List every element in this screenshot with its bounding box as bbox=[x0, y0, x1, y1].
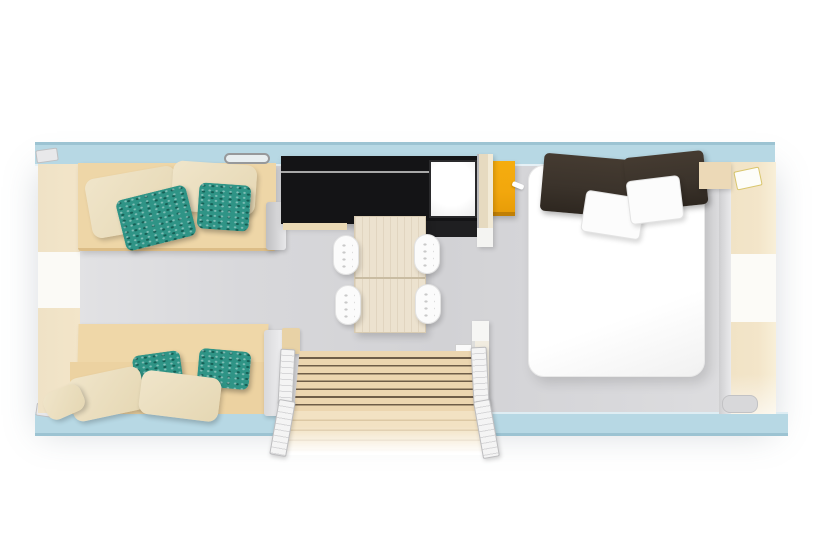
chair-tufting-dots bbox=[341, 292, 355, 318]
wood-deck-steps-lower bbox=[286, 411, 490, 455]
window-top bbox=[224, 153, 270, 164]
floorplan-canvas bbox=[0, 0, 820, 560]
partition-wall-top bbox=[477, 154, 493, 247]
chair-white bbox=[415, 284, 441, 324]
side-bench-left-white-band bbox=[38, 252, 80, 308]
dining-table-split bbox=[355, 277, 425, 279]
chair-white bbox=[414, 234, 440, 274]
chair-tufting-dots bbox=[420, 241, 434, 267]
rail-end-cap-right bbox=[722, 395, 758, 413]
chair-white bbox=[333, 235, 359, 275]
partition-wall-top-cap bbox=[477, 228, 493, 247]
partition-wall-bottom-cap bbox=[472, 321, 489, 341]
kitchen-front-strip bbox=[283, 223, 347, 230]
chair-white bbox=[335, 285, 361, 325]
pillow-white bbox=[626, 175, 685, 225]
appliance-white bbox=[429, 160, 477, 218]
pillow-teal bbox=[196, 182, 251, 232]
railing-right bbox=[471, 347, 490, 404]
deck-fade bbox=[286, 411, 490, 455]
railing-left bbox=[278, 349, 296, 406]
chair-tufting-dots bbox=[421, 291, 435, 317]
wardrobe-right-white-band bbox=[731, 254, 776, 322]
wardrobe-right bbox=[731, 162, 776, 414]
chair-tufting-dots bbox=[339, 242, 353, 268]
bedside-shelf bbox=[699, 162, 731, 189]
wood-deck-steps-upper bbox=[294, 351, 482, 411]
